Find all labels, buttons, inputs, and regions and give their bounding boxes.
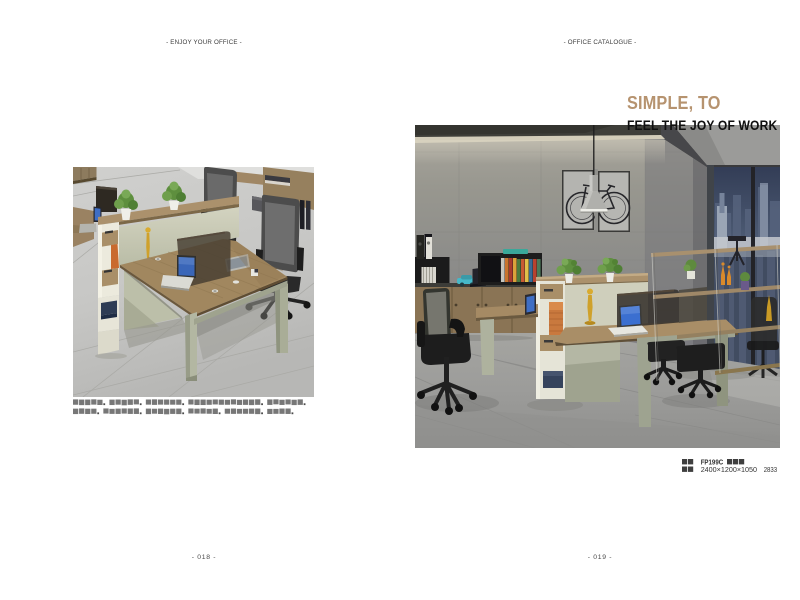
svg-text:2833: 2833 <box>764 465 778 474</box>
svg-text:2400×1200×1050: 2400×1200×1050 <box>701 465 757 474</box>
